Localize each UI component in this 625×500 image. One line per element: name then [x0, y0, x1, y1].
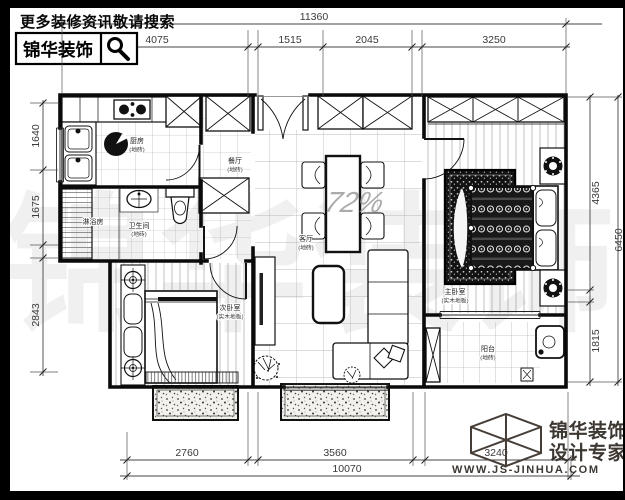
- frame-bar-bottom: [0, 491, 625, 500]
- shower-label: 淋浴房: [83, 217, 104, 226]
- coffee-table: [313, 266, 344, 323]
- utility-label: 阳台: [481, 344, 495, 353]
- master-label: 主卧室: [445, 287, 466, 296]
- dresser-drawer: [124, 294, 142, 324]
- pillow: [536, 230, 556, 266]
- stove-burner: [120, 105, 129, 114]
- dim-top-seg4: 3250: [482, 34, 506, 46]
- planter-right: [281, 384, 389, 420]
- balcony-slider-band: [146, 372, 238, 383]
- plant-small: [344, 367, 360, 383]
- bed2-headboard: [158, 297, 217, 301]
- sofa-vertical: [368, 250, 408, 345]
- dim-right-seg1: 4365: [590, 181, 602, 205]
- bed-knob: [468, 265, 473, 270]
- stove-burner: [137, 105, 146, 114]
- dining-label: 餐厅: [228, 156, 242, 165]
- dresser-drawer: [124, 327, 142, 357]
- dim-bottom-seg3: 3240: [484, 447, 508, 459]
- nightstand-lamp: [544, 157, 563, 176]
- dining-cabinet-x: [318, 96, 363, 129]
- dining-cabinet-x: [363, 96, 412, 129]
- toilet-tank: [166, 188, 194, 197]
- master-furniture: [445, 148, 566, 306]
- washbasin-drain: [138, 193, 141, 196]
- master-floor-label: (实木地板): [441, 297, 468, 305]
- dining-chair: [302, 162, 325, 188]
- planter-left: [153, 386, 238, 420]
- frame-bar-top: [0, 0, 625, 8]
- dining-chair: [361, 162, 384, 188]
- footer-brand-line1: 锦华装饰: [549, 419, 625, 442]
- dim-left-seg3: 2843: [30, 303, 42, 327]
- promo-text: 更多装修资讯敬请搜索: [20, 13, 175, 31]
- dim-bottom-seg1: 2760: [175, 447, 199, 459]
- dim-top-seg1: 4075: [145, 34, 169, 46]
- bed-knob: [530, 265, 535, 270]
- hall-cabinet-x: [206, 96, 250, 131]
- floor-plan-svg: 锦华装饰: [0, 0, 625, 500]
- footer-website: WWW.JS-JINHUA.COM: [452, 464, 600, 476]
- dim-bottom-overall: 10070: [332, 463, 361, 475]
- entry-door-leaf: [303, 96, 308, 130]
- bed-knob: [468, 225, 473, 230]
- nightstand-lamp: [544, 279, 563, 298]
- dim-left-seg2: 1675: [30, 195, 42, 219]
- watermark-percent: 72%: [321, 186, 387, 218]
- kitchen-floor-label: (地砖): [129, 146, 145, 154]
- living-label: 客厅: [299, 234, 313, 243]
- dining-floor-label: (地砖): [227, 166, 243, 174]
- tv-screen: [260, 273, 264, 325]
- faucet: [76, 158, 80, 162]
- utility-cabinet-x: [426, 328, 440, 382]
- dim-top-seg2: 1515: [278, 34, 302, 46]
- master-closet-x: [428, 97, 564, 124]
- stove-knob: [131, 103, 134, 106]
- hall-shoe-cabinet-x: [199, 178, 249, 213]
- bed-knob: [530, 185, 535, 190]
- dim-top-overall: 11360: [300, 11, 329, 23]
- hall-cabinet-x: [166, 96, 202, 127]
- floorplan-page: 锦华装饰: [0, 0, 625, 500]
- bedroom2-label: 次卧室: [220, 303, 241, 312]
- dim-right-seg2: 1815: [590, 329, 602, 353]
- living-floor-label: (地砖): [298, 244, 314, 252]
- footer-brand-line2: 设计专家: [549, 441, 625, 464]
- dim-left-seg1: 1640: [30, 124, 42, 148]
- dim-bottom-seg2: 3560: [323, 447, 347, 459]
- brand-text: 锦华装饰: [23, 40, 93, 60]
- master-quilt: [471, 187, 533, 269]
- entry-door-leaf: [258, 96, 263, 130]
- bed2: [145, 291, 217, 383]
- bath-label: 卫生间: [129, 221, 150, 230]
- dim-top-seg3: 2045: [355, 34, 379, 46]
- stove-knob: [131, 114, 134, 117]
- bath-floor-label: (地砖): [131, 230, 147, 238]
- pillow: [536, 190, 556, 226]
- tv-cabinet: [255, 257, 275, 345]
- faucet: [76, 129, 80, 133]
- kitchen-label: 厨房: [130, 136, 144, 145]
- bedroom2-floor-label: (实木地板): [216, 313, 243, 321]
- utility-floor-label: (地砖): [480, 354, 496, 362]
- frame-bar-left: [0, 0, 10, 500]
- bed-knob: [468, 185, 473, 190]
